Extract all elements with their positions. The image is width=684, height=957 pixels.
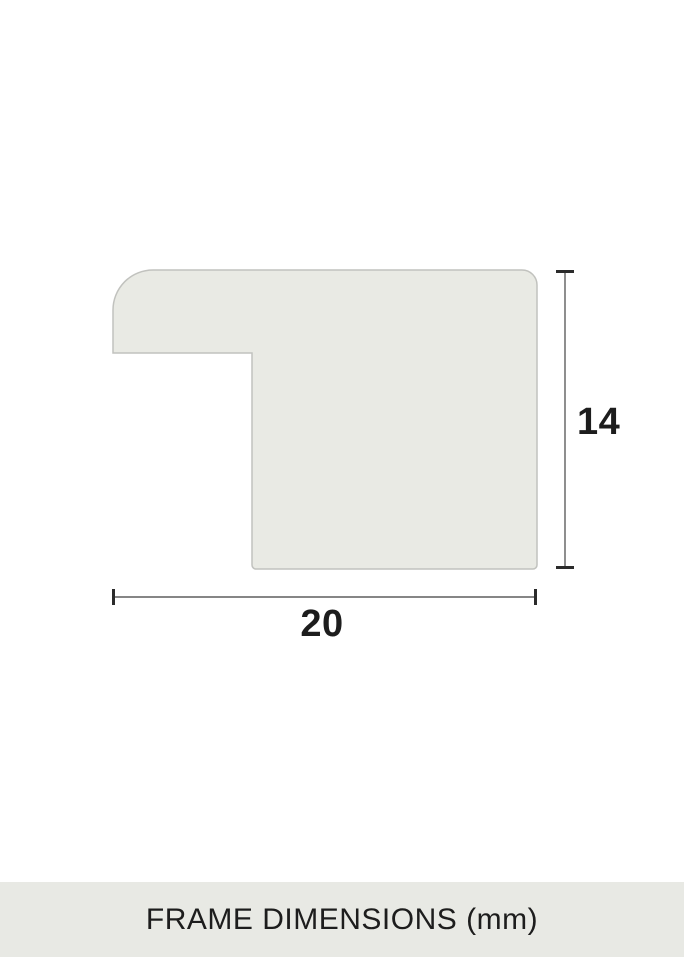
- profile-drawing: [0, 0, 684, 957]
- width-dimension-label: 20: [272, 605, 372, 643]
- footer-title: FRAME DIMENSIONS (mm): [146, 903, 538, 937]
- height-dimension-label: 14: [577, 403, 620, 441]
- frame-dimensions-diagram: 14 20 FRAME DIMENSIONS (mm): [0, 0, 684, 957]
- footer-bar: FRAME DIMENSIONS (mm): [0, 882, 684, 957]
- height-dimension-line: [556, 272, 574, 568]
- moulding-profile-shape: [113, 270, 537, 569]
